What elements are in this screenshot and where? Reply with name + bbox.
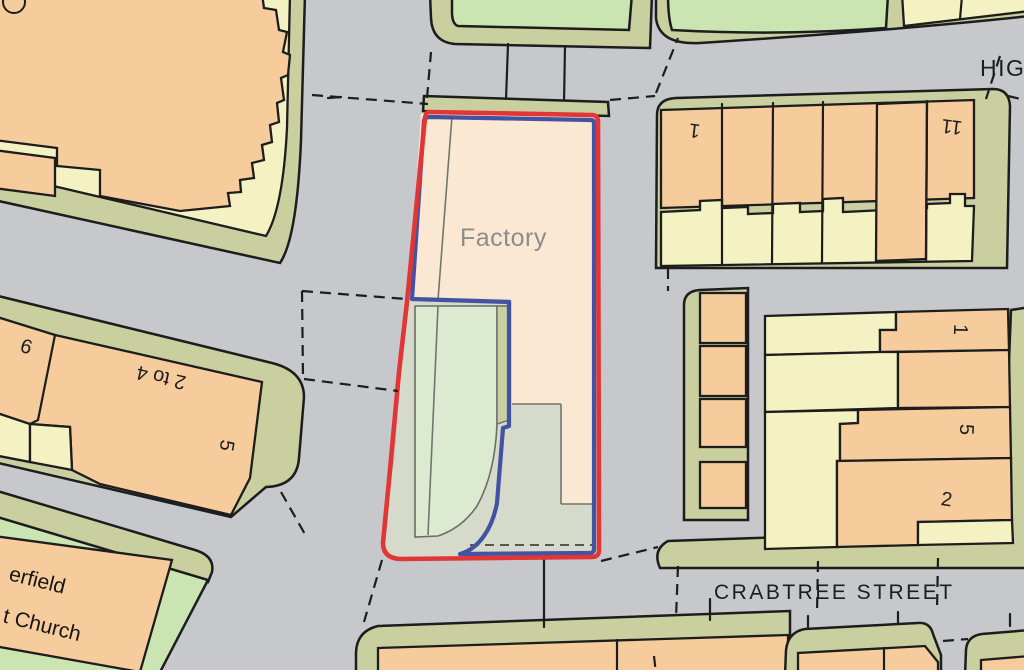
building-top-left-annex — [0, 150, 55, 196]
boundary-dashed — [817, 561, 818, 613]
parcel-divider — [822, 102, 823, 262]
building-no1-right — [880, 309, 1009, 352]
factory-label: Factory — [460, 224, 547, 252]
small-building — [700, 293, 746, 343]
parcel-yellow-left-b — [30, 424, 72, 470]
building-no5-right — [840, 407, 1011, 461]
map-canvas[interactable]: HIG 1 11 1 5 2 CRABTREE STREET 9 — [0, 0, 1024, 670]
boundary-dashed — [937, 558, 938, 610]
parcel-yellow-1 — [765, 312, 896, 355]
house-number-1b: 1 — [949, 324, 971, 336]
street-label-high: HIG — [980, 55, 1024, 81]
site-plan-map: HIG 1 11 1 5 2 CRABTREE STREET 9 — [0, 0, 1024, 670]
parcel-divider — [926, 101, 927, 260]
grass-top-right — [668, 0, 888, 33]
small-building — [700, 462, 746, 508]
small-building — [700, 399, 746, 447]
street-label-crabtree: CRABTREE STREET — [714, 581, 955, 604]
parcel-divider — [772, 103, 773, 263]
parcel-yellow-4 — [918, 520, 1013, 545]
parcel-yellow-2 — [765, 352, 898, 412]
terrace-house-full-depth — [876, 102, 927, 261]
passage-wall-right — [564, 46, 565, 103]
house-number-5b: 5 — [955, 424, 977, 436]
small-building — [700, 346, 746, 396]
grass-top-center — [452, 0, 632, 30]
building-mid-right — [898, 350, 1010, 408]
house-number-11: 11 — [940, 114, 963, 138]
building-church — [0, 536, 172, 670]
